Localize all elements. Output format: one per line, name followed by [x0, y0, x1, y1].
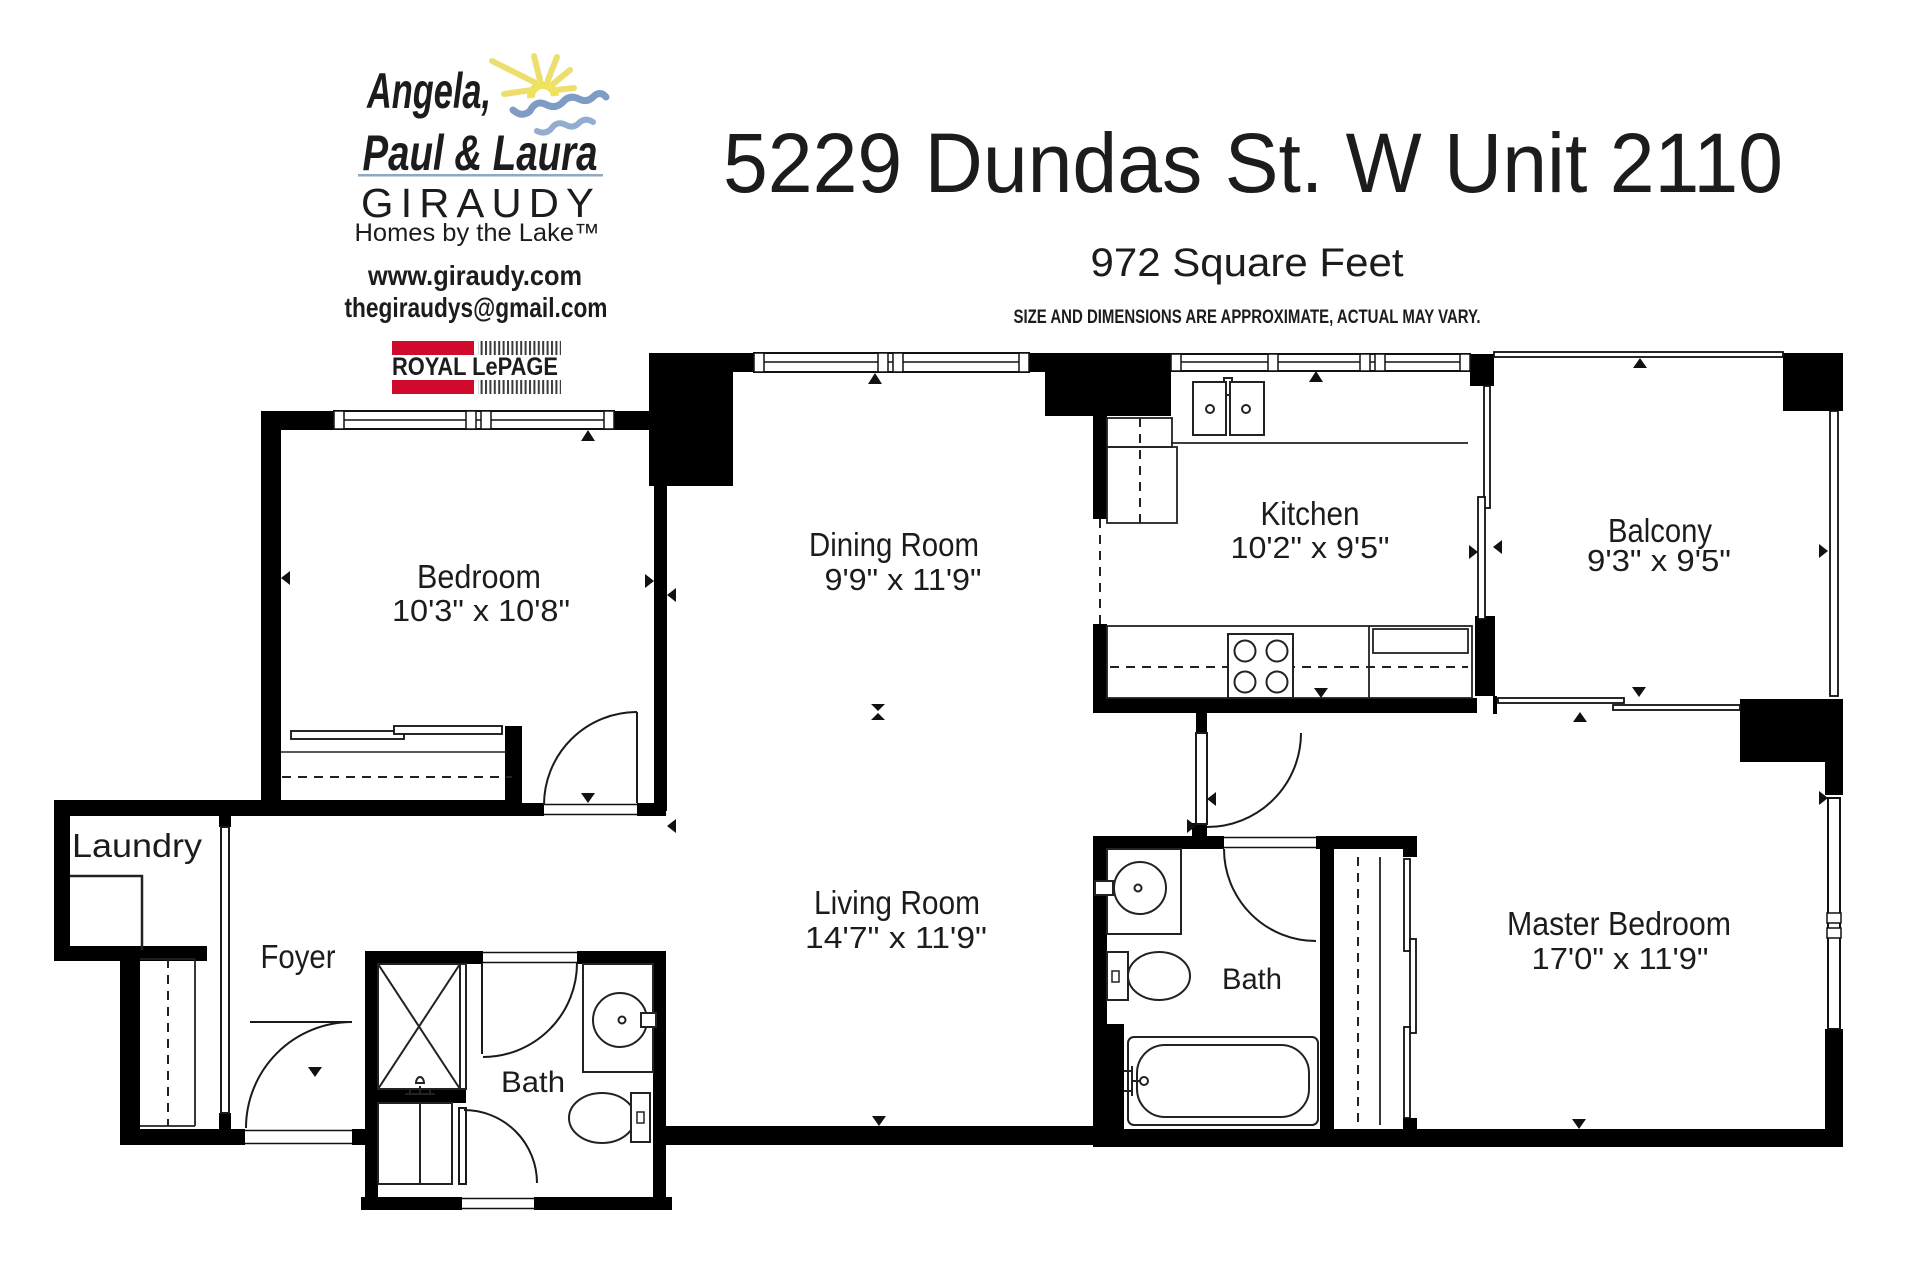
svg-text:Bath: Bath — [501, 1066, 565, 1099]
svg-text:Dining Room: Dining Room — [809, 526, 979, 563]
svg-text:9'9" x 11'9": 9'9" x 11'9" — [825, 562, 982, 597]
svg-text:10'2" x 9'5": 10'2" x 9'5" — [1231, 530, 1390, 565]
svg-text:Angela,: Angela, — [366, 63, 491, 119]
svg-text:www.giraudy.com: www.giraudy.com — [367, 260, 582, 291]
svg-text:9'3" x 9'5": 9'3" x 9'5" — [1587, 543, 1731, 578]
svg-text:Bedroom: Bedroom — [417, 558, 541, 595]
svg-text:Homes by the Lake™: Homes by the Lake™ — [355, 219, 600, 247]
svg-text:Foyer: Foyer — [261, 938, 336, 975]
svg-text:Paul & Laura: Paul & Laura — [363, 125, 598, 181]
svg-text:10'3" x 10'8": 10'3" x 10'8" — [392, 593, 570, 628]
svg-text:972 Square Feet: 972 Square Feet — [1091, 241, 1404, 285]
svg-text:Bath: Bath — [1222, 963, 1282, 996]
svg-text:SIZE AND DIMENSIONS ARE APPROX: SIZE AND DIMENSIONS ARE APPROXIMATE, ACT… — [1014, 306, 1481, 328]
svg-text:Master Bedroom: Master Bedroom — [1507, 905, 1731, 942]
svg-text:ROYAL LePAGE: ROYAL LePAGE — [392, 353, 558, 381]
svg-text:Laundry: Laundry — [72, 827, 203, 864]
svg-text:thegiraudys@gmail.com: thegiraudys@gmail.com — [345, 292, 608, 323]
svg-text:Living Room: Living Room — [814, 884, 980, 921]
svg-text:Kitchen: Kitchen — [1261, 495, 1360, 532]
svg-text:14'7" x 11'9": 14'7" x 11'9" — [805, 920, 987, 955]
svg-text:17'0" x 11'9": 17'0" x 11'9" — [1532, 941, 1709, 976]
svg-text:5229 Dundas St. W Unit 2110: 5229 Dundas St. W Unit 2110 — [723, 116, 1783, 210]
